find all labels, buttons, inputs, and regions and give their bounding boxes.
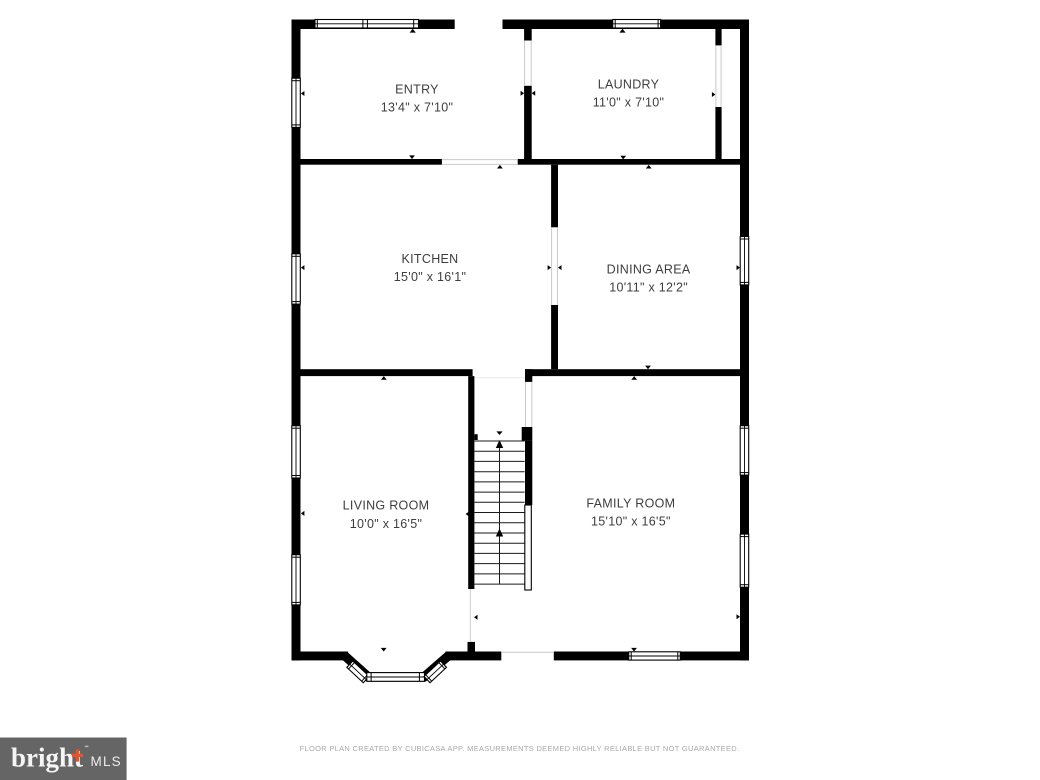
svg-text:ENTRY: ENTRY xyxy=(395,82,439,96)
svg-text:KITCHEN: KITCHEN xyxy=(402,252,459,266)
svg-text:10'11" x 12'2": 10'11" x 12'2" xyxy=(609,281,688,295)
svg-text:15'0" x 16'1": 15'0" x 16'1" xyxy=(394,270,466,284)
svg-text:FLOOR PLAN CREATED BY CUBICASA: FLOOR PLAN CREATED BY CUBICASA APP. MEAS… xyxy=(300,744,740,753)
svg-text:13'4" x 7'10": 13'4" x 7'10" xyxy=(381,100,453,114)
svg-text:10'0" x 16'5": 10'0" x 16'5" xyxy=(350,517,422,531)
svg-text:FAMILY ROOM: FAMILY ROOM xyxy=(586,496,675,510)
svg-text:LIVING ROOM: LIVING ROOM xyxy=(343,498,430,512)
svg-text:DINING AREA: DINING AREA xyxy=(607,262,691,276)
svg-text:15'10" x 16'5": 15'10" x 16'5" xyxy=(591,514,671,528)
svg-text:bright: bright xyxy=(11,743,83,773)
svg-text:11'0" x 7'10": 11'0" x 7'10" xyxy=(593,95,665,109)
svg-text:LAUNDRY: LAUNDRY xyxy=(598,77,660,91)
svg-text:MLS: MLS xyxy=(91,754,122,769)
